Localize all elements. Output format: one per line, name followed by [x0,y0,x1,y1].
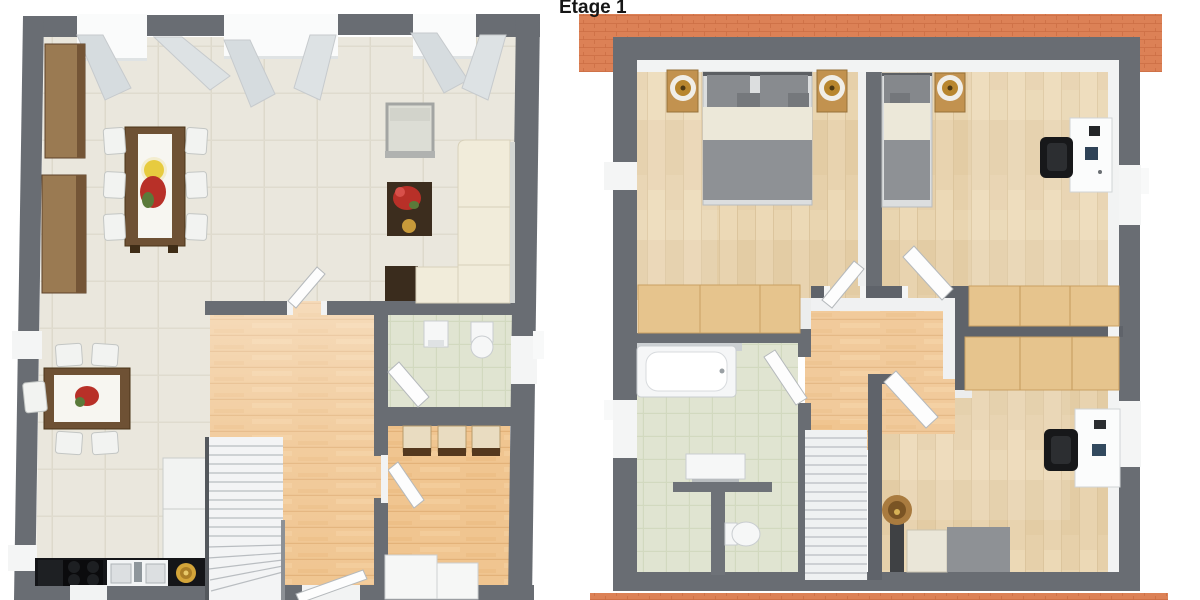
svg-text:Etage 1: Etage 1 [559,0,627,18]
